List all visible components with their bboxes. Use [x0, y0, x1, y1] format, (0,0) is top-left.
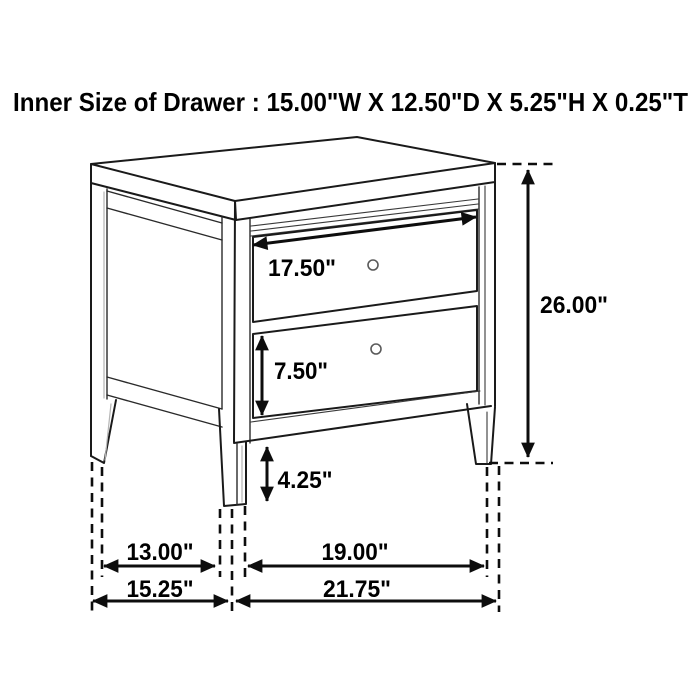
label-base-clearance: 4.25"	[278, 467, 333, 494]
label-side-overall-depth: 15.25"	[127, 576, 194, 603]
drawer-knob-bottom	[371, 344, 381, 354]
dimension-diagram: Inner Size of Drawer : 15.00"W X 12.50"D…	[0, 0, 700, 700]
label-overall-height: 26.00"	[540, 292, 608, 319]
label-bottom-drawer-height: 7.50"	[274, 358, 328, 385]
label-front-overall-width: 21.75"	[323, 576, 391, 603]
drawer-knob-top	[368, 260, 378, 270]
label-top-drawer-width: 17.50"	[268, 255, 336, 282]
nightstand-drawing	[91, 137, 495, 506]
dimension-labels: 17.50" 26.00" 7.50" 4.25" 13.00" 19.00" …	[127, 255, 609, 603]
leg-front-right	[467, 404, 495, 464]
label-front-inner-width: 19.00"	[322, 539, 389, 566]
leg-back-left	[91, 400, 116, 463]
page-title: Inner Size of Drawer : 15.00"W X 12.50"D…	[13, 87, 688, 117]
arrow-top-drawer-width	[253, 217, 476, 245]
dimension-arrows	[93, 170, 528, 601]
label-side-inner-depth: 13.00"	[127, 539, 194, 566]
